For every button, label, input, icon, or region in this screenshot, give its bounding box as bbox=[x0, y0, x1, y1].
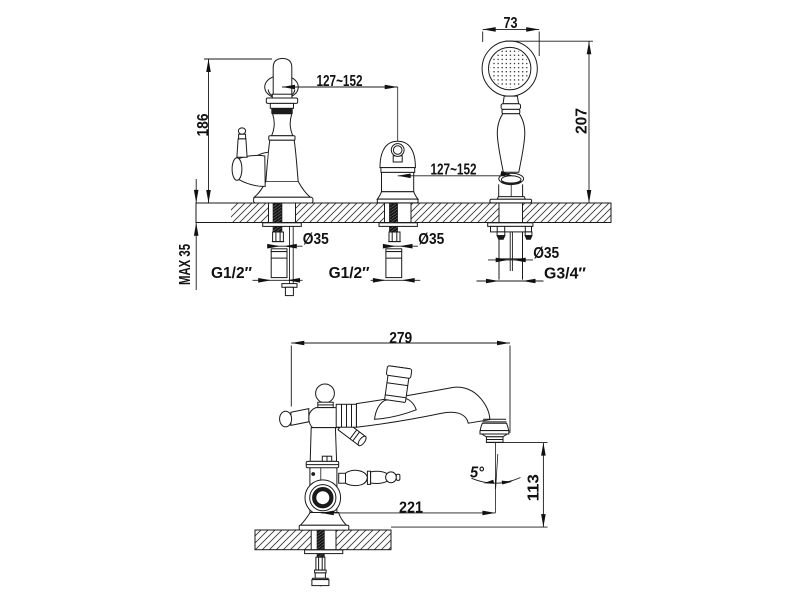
svg-text:G1/2″: G1/2″ bbox=[329, 265, 370, 282]
svg-text:G1/2″: G1/2″ bbox=[211, 265, 252, 282]
svg-text:221: 221 bbox=[399, 499, 423, 516]
svg-text:127~152: 127~152 bbox=[317, 73, 363, 90]
svg-text:Ø35: Ø35 bbox=[303, 231, 329, 248]
svg-text:MAX 35: MAX 35 bbox=[177, 244, 194, 285]
svg-text:186: 186 bbox=[195, 113, 212, 136]
svg-text:127~152: 127~152 bbox=[431, 161, 477, 178]
svg-text:73: 73 bbox=[504, 15, 518, 32]
svg-text:Ø35: Ø35 bbox=[418, 231, 444, 248]
svg-text:113: 113 bbox=[526, 474, 543, 501]
svg-text:207: 207 bbox=[574, 108, 591, 134]
svg-text:279: 279 bbox=[389, 330, 412, 347]
svg-text:5°: 5° bbox=[470, 465, 485, 482]
svg-text:Ø35: Ø35 bbox=[533, 245, 559, 262]
svg-text:G3/4″: G3/4″ bbox=[544, 266, 586, 283]
